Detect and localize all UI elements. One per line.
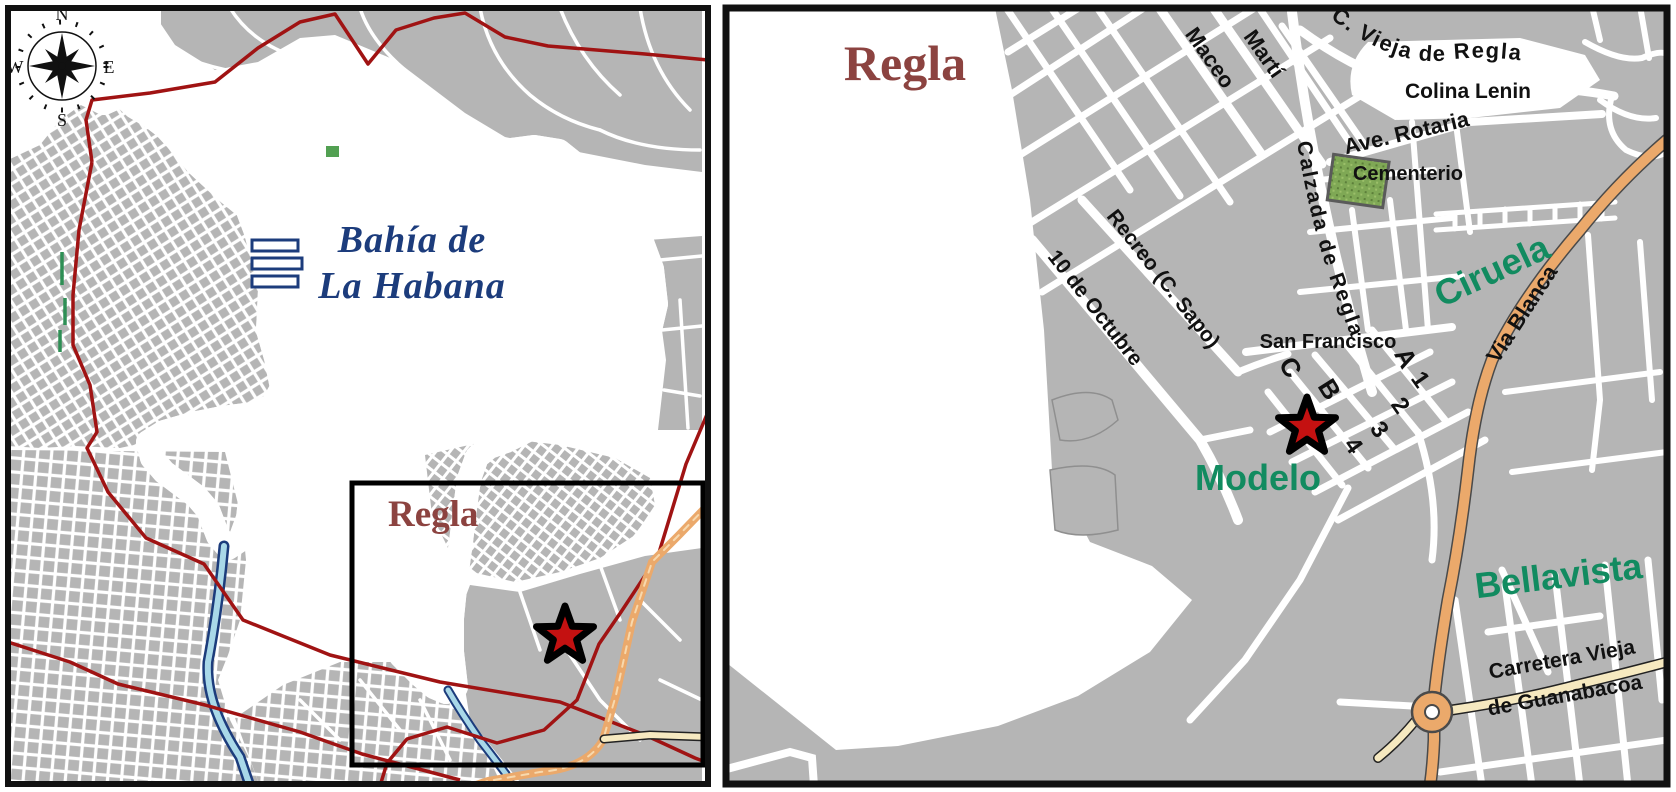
overview-map-panel: N E S W Bahía de La Habana Regla — [0, 0, 717, 792]
roundabout — [1412, 692, 1452, 732]
park-patch — [326, 146, 339, 157]
detail-map-panel: Regla Maceo Martí C. Vieja de Regla Coli… — [717, 0, 1676, 792]
bay-label-line1: Bahía de — [337, 219, 486, 261]
district-label-modelo: Modelo — [1195, 457, 1321, 498]
district-label-colina-lenin: Colina Lenin — [1405, 80, 1531, 103]
map-figure: N E S W Bahía de La Habana Regla — [0, 0, 1676, 792]
place-label-cementerio: Cementerio — [1353, 163, 1463, 185]
compass-east-label: E — [104, 57, 115, 77]
bay-label-line2: La Habana — [317, 265, 505, 307]
detail-title-regla: Regla — [844, 35, 966, 91]
compass-south-label: S — [57, 110, 67, 130]
highway-carretera-overview — [604, 735, 708, 739]
harbor-piers — [252, 240, 302, 287]
inset-regla-label: Regla — [388, 494, 478, 535]
street-label-san-francisco: San Francisco — [1260, 331, 1397, 353]
